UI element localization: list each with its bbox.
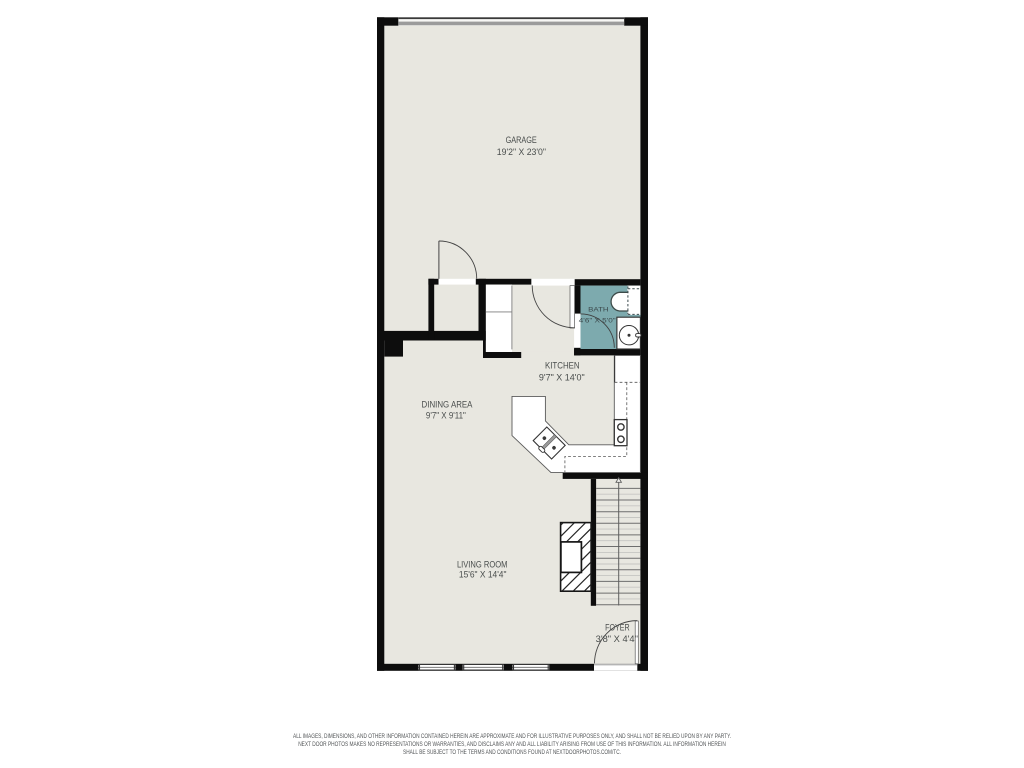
svg-text:BATH: BATH [588, 307, 609, 314]
svg-text:FOYER: FOYER [605, 622, 630, 632]
svg-text:SHALL BE SUBJECT TO THE TERMS: SHALL BE SUBJECT TO THE TERMS AND CONDIT… [403, 750, 621, 756]
svg-text:19'2" X 23'0": 19'2" X 23'0" [497, 147, 546, 157]
svg-text:KITCHEN: KITCHEN [545, 361, 580, 372]
svg-text:3'8" X 4'4": 3'8" X 4'4" [596, 634, 638, 644]
svg-text:DINING AREA: DINING AREA [422, 399, 473, 410]
svg-text:NEXT DOOR PHOTOS MAKES NO REPR: NEXT DOOR PHOTOS MAKES NO REPRESENTATION… [298, 742, 726, 748]
svg-text:GARAGE: GARAGE [506, 135, 537, 145]
svg-text:9'7" X 14'0": 9'7" X 14'0" [539, 373, 585, 383]
svg-text:15'6" X 14'4": 15'6" X 14'4" [459, 570, 507, 580]
svg-text:9'7" X 9'11": 9'7" X 9'11" [426, 411, 466, 421]
svg-text:4'6" X 5'0": 4'6" X 5'0" [579, 317, 617, 324]
svg-text:ALL IMAGES, DIMENSIONS, AND OT: ALL IMAGES, DIMENSIONS, AND OTHER INFORM… [293, 734, 731, 740]
